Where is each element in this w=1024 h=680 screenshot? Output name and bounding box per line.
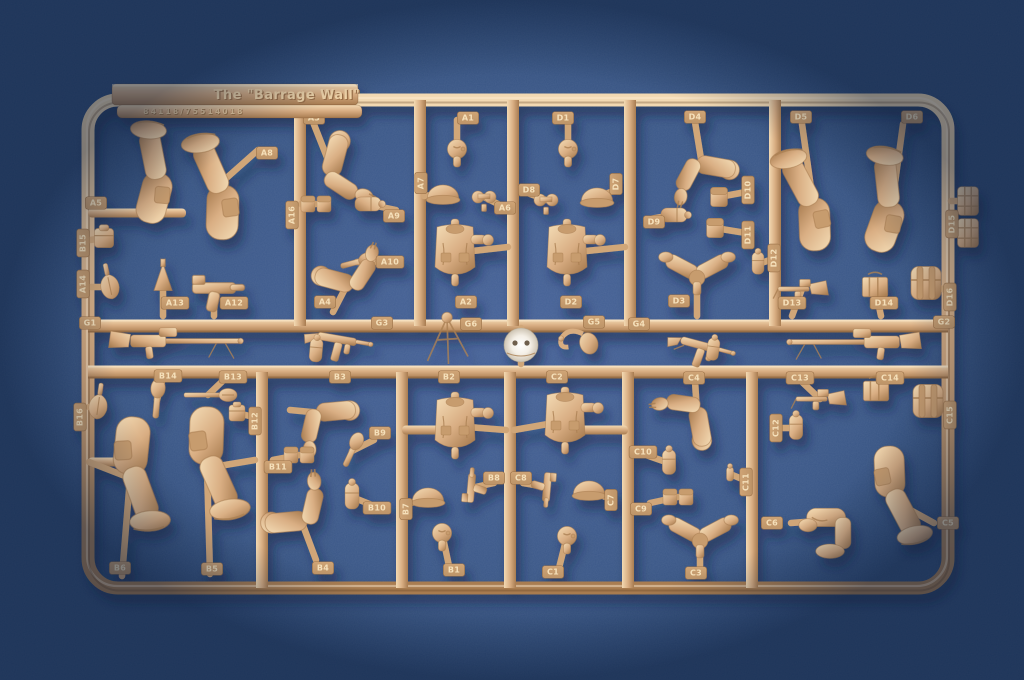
model-kit-sprue-photo: The "Barrage Wall" 84118/75514018 A5A8B1… [0, 0, 1024, 680]
sprue-photo-canvas: A5A8B15A14A13A12G1A3A16A9A10A4G3A1A7A6A2… [0, 0, 1024, 680]
vignette [0, 0, 1024, 680]
vignette-overlay [0, 0, 1024, 680]
